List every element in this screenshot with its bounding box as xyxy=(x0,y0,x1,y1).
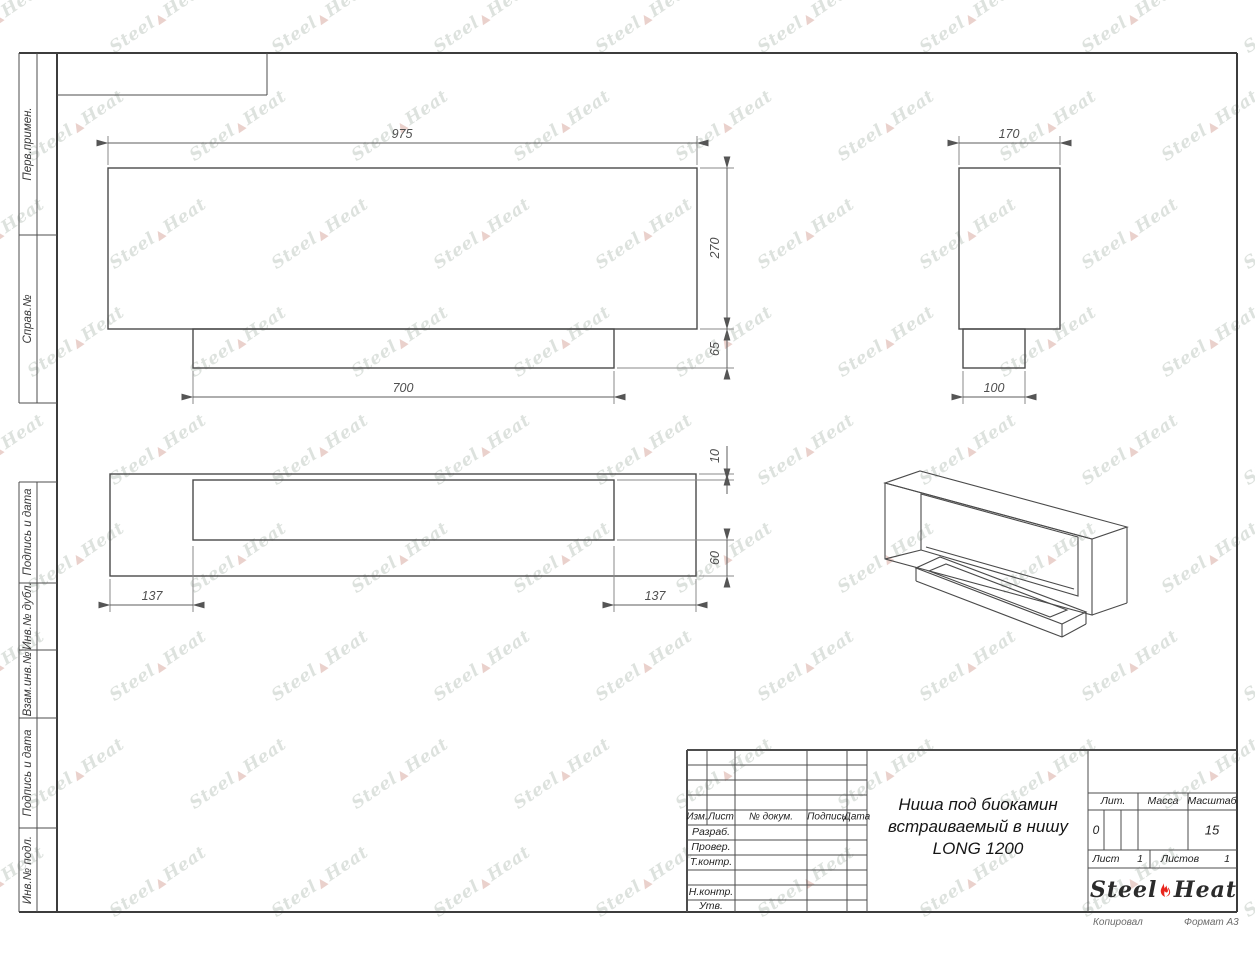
drawing-sheet: Steel▲HeatSteel▲HeatSteel▲HeatSteel▲Heat… xyxy=(0,0,1255,970)
tb-sheets-label: Листов xyxy=(1161,853,1199,865)
tb-lit-value: 0 xyxy=(1093,823,1100,837)
tb-sheet-label: Лист xyxy=(1092,853,1119,865)
margin-label-podpis-data-1: Подпись и дата xyxy=(22,489,34,576)
tb-scale-label: Масштаб xyxy=(1187,795,1236,807)
tb-header-podpis: Подпись xyxy=(807,812,847,823)
flame-icon xyxy=(1160,877,1170,903)
document-title-line-2: встраиваемый в нишу xyxy=(869,816,1087,838)
format-label: Формат А3 xyxy=(1184,917,1239,928)
margin-label-perv-primen: Перв.примен. xyxy=(22,107,34,180)
document-title-line-3: LONG 1200 xyxy=(869,838,1087,860)
brand-word-steel: Steel xyxy=(1090,877,1157,903)
tb-row-prover: Провер. xyxy=(691,841,730,853)
margin-label-vzam-inv: Взам.инв.№ xyxy=(22,652,34,717)
tb-row-tkontr: Т.контр. xyxy=(690,856,732,868)
brand-logo: Steel Heat xyxy=(1090,868,1237,912)
text-layer: Перв.примен. Справ.№ Подпись и дата Инв.… xyxy=(0,0,1255,970)
margin-label-inv-dubl: Инв.№ дубл. xyxy=(22,582,34,650)
document-title-line-1: Ниша под биокамин xyxy=(869,794,1087,816)
tb-row-utv: Утв. xyxy=(699,900,723,912)
document-title: Ниша под биокамин встраиваемый в нишу LO… xyxy=(869,794,1087,870)
margin-label-inv-podl: Инв.№ подл. xyxy=(22,836,34,904)
tb-row-razrab: Разраб. xyxy=(692,826,730,838)
tb-sheet-number: 1 xyxy=(1137,853,1143,865)
tb-header-no-dokum: № докум. xyxy=(749,812,793,823)
tb-sheets-total: 1 xyxy=(1224,853,1230,865)
brand-word-heat: Heat xyxy=(1174,877,1237,903)
tb-header-list: Лист xyxy=(708,812,734,823)
margin-label-sprav-no: Справ.№ xyxy=(22,294,34,343)
tb-header-data: Дата xyxy=(844,812,870,823)
tb-scale-value: 15 xyxy=(1205,823,1219,838)
copied-label: Копировал xyxy=(1093,917,1143,928)
tb-lit-label: Лит. xyxy=(1101,795,1126,807)
tb-mass-label: Масса xyxy=(1147,795,1178,807)
tb-row-nkontr: Н.контр. xyxy=(689,886,733,898)
tb-header-izm: Изм. xyxy=(686,812,707,823)
margin-label-podpis-data-2: Подпись и дата xyxy=(22,730,34,817)
